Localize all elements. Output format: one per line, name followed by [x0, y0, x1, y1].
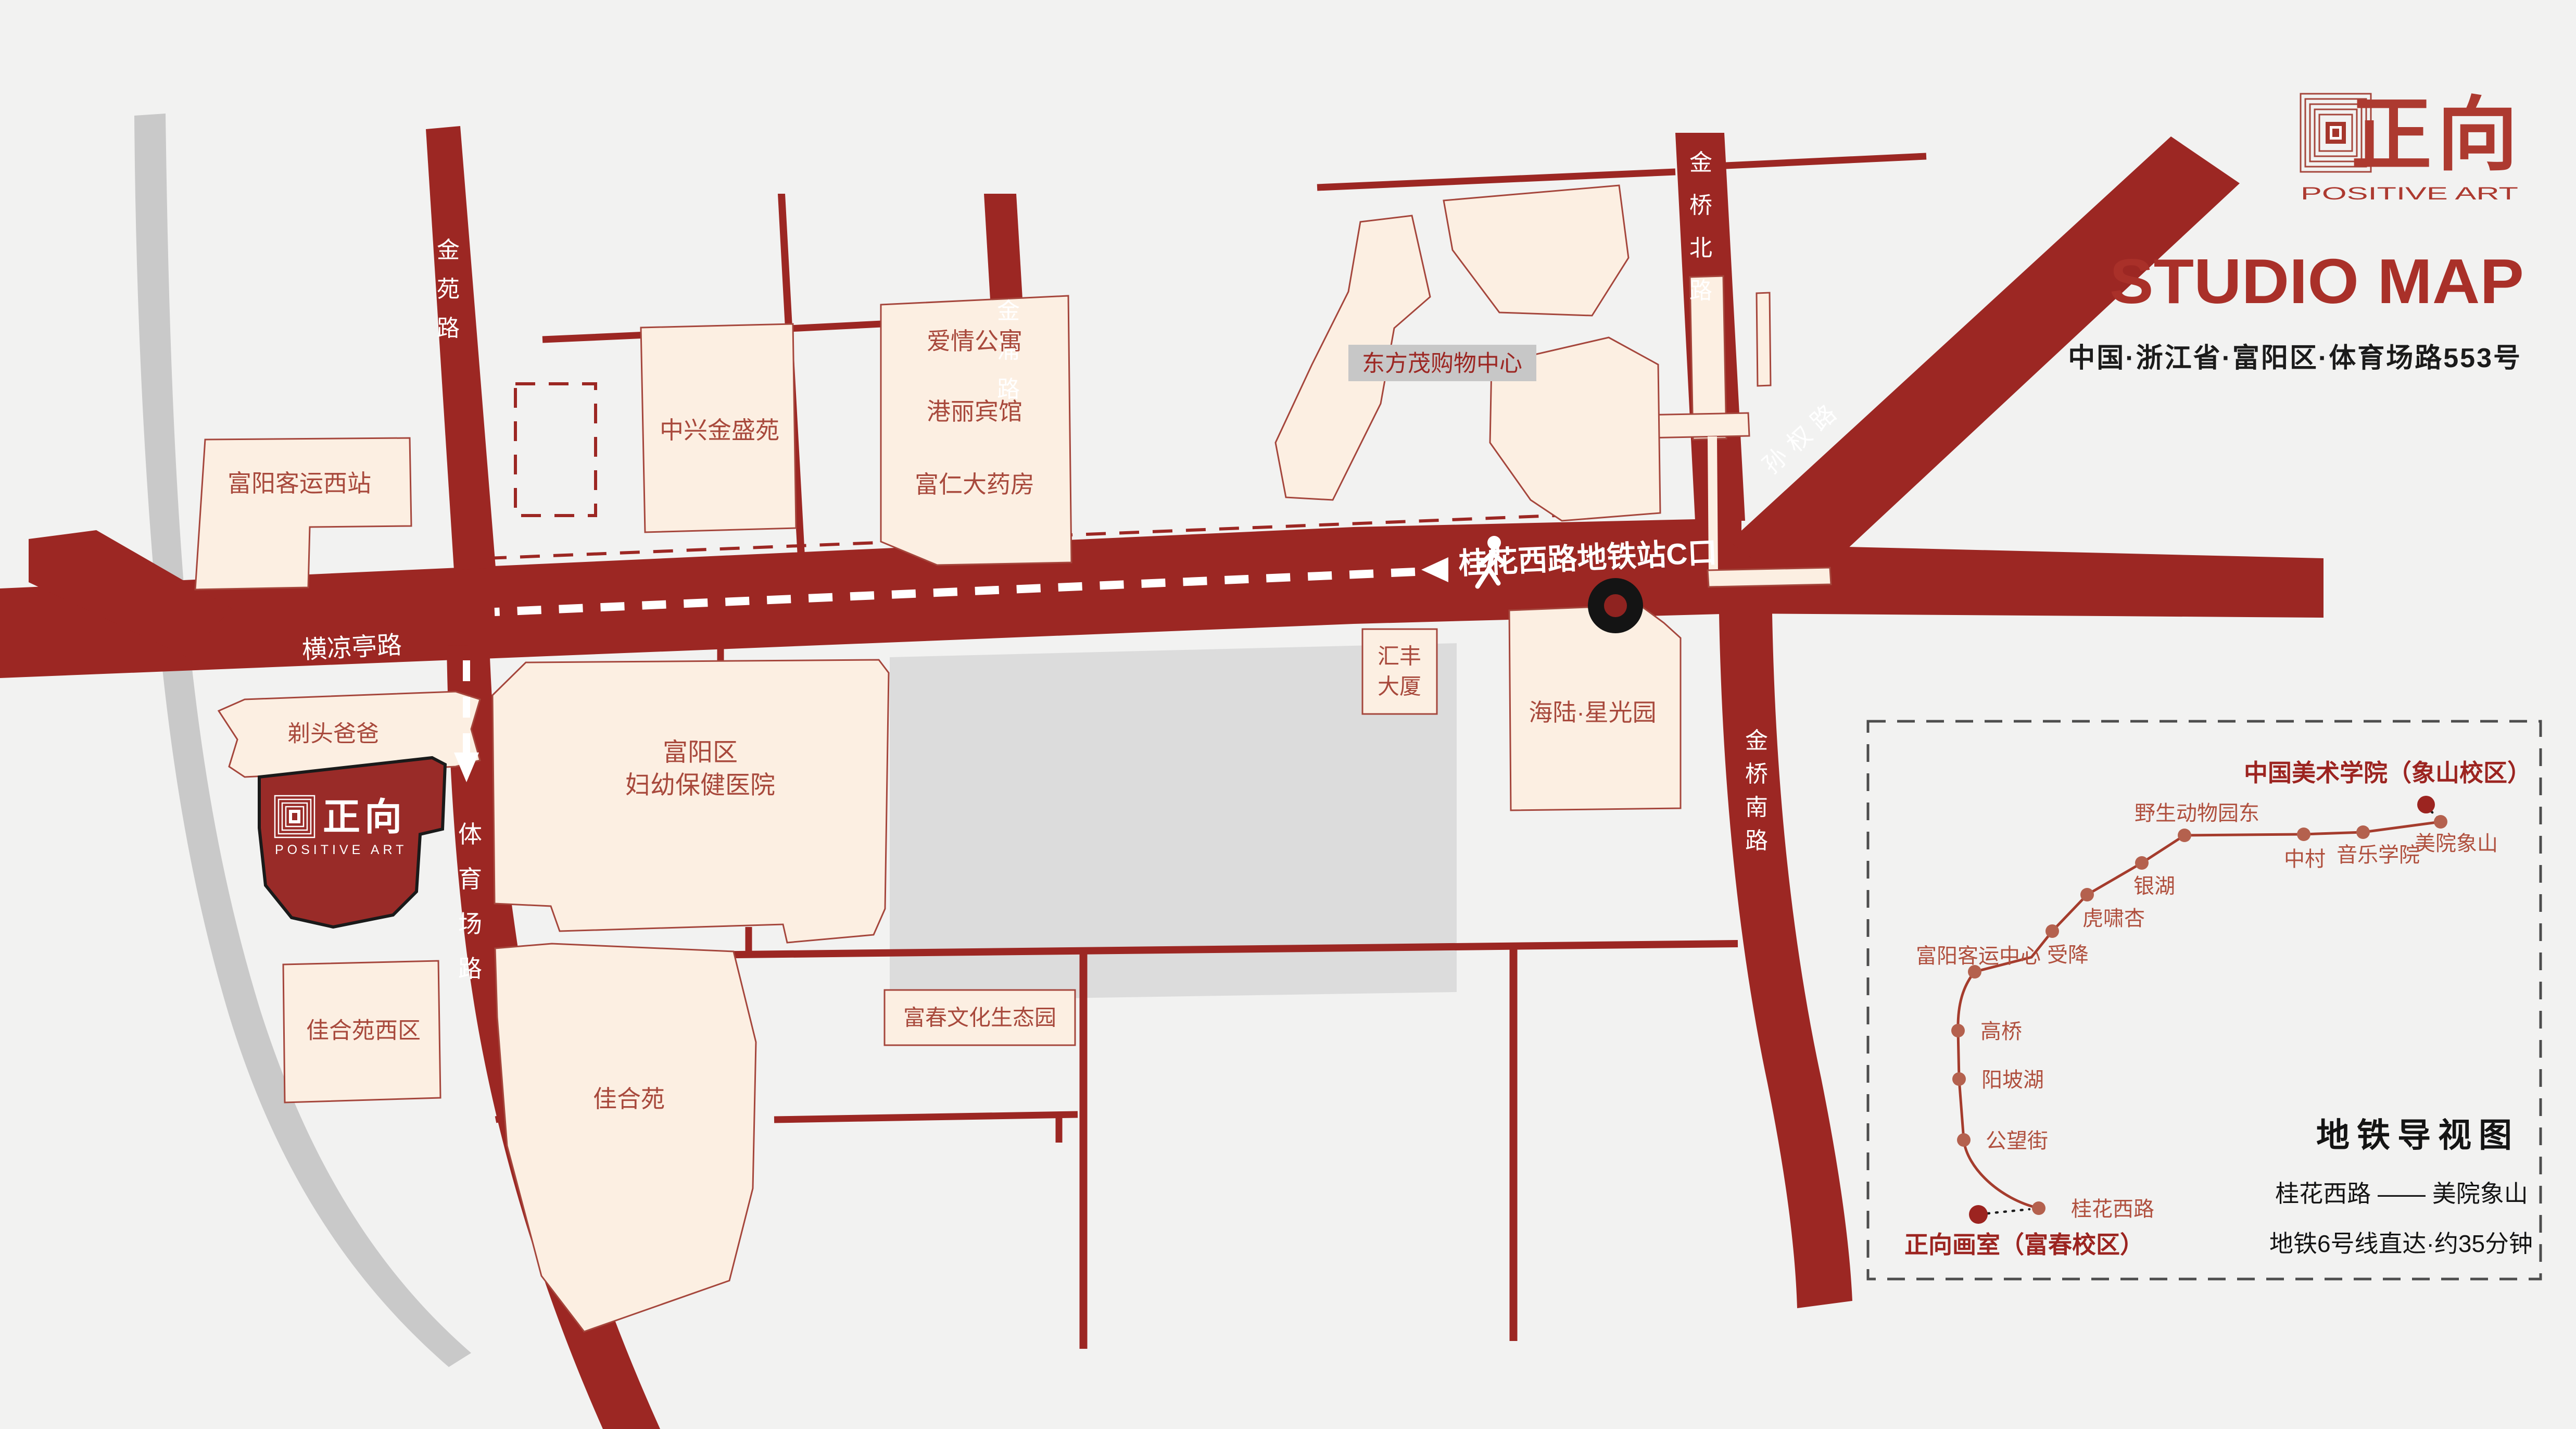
metro-station-dot — [2356, 825, 2370, 839]
studio-map-poster: 金苑路 横凉亭路 体育场路 金浦路 金桥北路 金桥南路 孙权路 桂花西路地铁站C… — [0, 0, 2576, 1429]
label-zhongxing: 中兴金盛苑 — [660, 417, 779, 444]
metro-station-dot — [2080, 888, 2094, 901]
metro-entrance-marker — [1588, 578, 1643, 633]
road-label-jinyuan: 金苑路 — [437, 237, 460, 341]
metro-note: 地铁6号线直达·约35分钟 — [2269, 1230, 2533, 1257]
label-fuchun-park: 富春文化生态园 — [903, 1006, 1056, 1030]
metro-station-label: 桂花西路 — [2071, 1198, 2154, 1221]
metro-station-label: 野生动物园东 — [2135, 802, 2259, 825]
label-aiqing: 爱情公寓 — [927, 328, 1022, 355]
metro-title-start: 正向画室（富春校区） — [1904, 1231, 2144, 1258]
metro-endpoint-start — [1969, 1205, 1988, 1224]
metro-route: 桂花西路 —— 美院象山 — [2275, 1180, 2528, 1207]
metro-station-label: 中村 — [2284, 848, 2326, 871]
metro-station-dot — [2434, 815, 2447, 829]
page-title: STUDIO MAP — [2110, 246, 2524, 317]
metro-station-label: 阳坡湖 — [1981, 1069, 2044, 1092]
studio-brand-cn: 正向 — [323, 795, 406, 839]
metro-station-label: 受降 — [2047, 944, 2089, 967]
label-hospital-line1: 富阳区 — [663, 739, 738, 767]
metro-station-dot — [2297, 828, 2310, 841]
label-dongfangmao: 东方茂购物中心 — [1362, 351, 1522, 377]
building-hospital — [493, 660, 889, 943]
metro-station-dot — [1952, 1072, 1966, 1086]
metro-station-label: 公望街 — [1986, 1130, 2048, 1152]
metro-station-label: 高桥 — [1980, 1020, 2022, 1043]
metro-title-end: 中国美术学院（象山校区） — [2244, 759, 2531, 786]
header-address: 中国·浙江省·富阳区·体育场路553号 — [2068, 343, 2522, 373]
metro-station-dot — [1957, 1133, 1971, 1147]
metro-heading: 地铁导视图 — [2316, 1117, 2519, 1154]
building-huifeng — [1362, 629, 1437, 714]
header-brand-cn: 正向 — [2351, 87, 2523, 182]
label-jiaheyuan: 佳合苑 — [593, 1085, 665, 1112]
studio-brand-en: POSITIVE ART — [275, 843, 407, 857]
label-furen: 富仁大药房 — [915, 471, 1034, 498]
label-jiaheyuan-west: 佳合苑西区 — [306, 1018, 421, 1044]
metro-station-dot — [2032, 1201, 2045, 1215]
metro-station-dot — [1951, 1024, 1965, 1037]
metro-station-label: 虎啸杏 — [2082, 907, 2145, 930]
metro-station-label: 音乐学院 — [2337, 844, 2420, 867]
label-bus-station-west: 富阳客运西站 — [228, 470, 371, 497]
header-brand-en: POSITIVE ART — [2301, 184, 2518, 204]
label-hailu: 海陆·星光园 — [1529, 699, 1656, 726]
metro-station-dot — [2178, 829, 2191, 842]
label-huifeng-line1: 汇丰 — [1378, 644, 1421, 669]
metro-endpoint-end — [2417, 796, 2435, 813]
metro-station-label: 美院象山 — [2415, 832, 2498, 855]
label-huifeng-line2: 大厦 — [1378, 674, 1421, 699]
road-label-hengliangting: 横凉亭路 — [301, 632, 403, 665]
metro-station-label: 银湖 — [2133, 875, 2175, 898]
label-titou-baba: 剃头爸爸 — [287, 721, 379, 747]
label-hospital-line2: 妇幼保健医院 — [625, 772, 775, 799]
metro-station-dot — [2135, 856, 2149, 870]
metro-station-label: 富阳客运中心 — [1916, 945, 2041, 968]
metro-station-dot — [2045, 924, 2059, 938]
label-gangli: 港丽宾馆 — [927, 398, 1022, 425]
